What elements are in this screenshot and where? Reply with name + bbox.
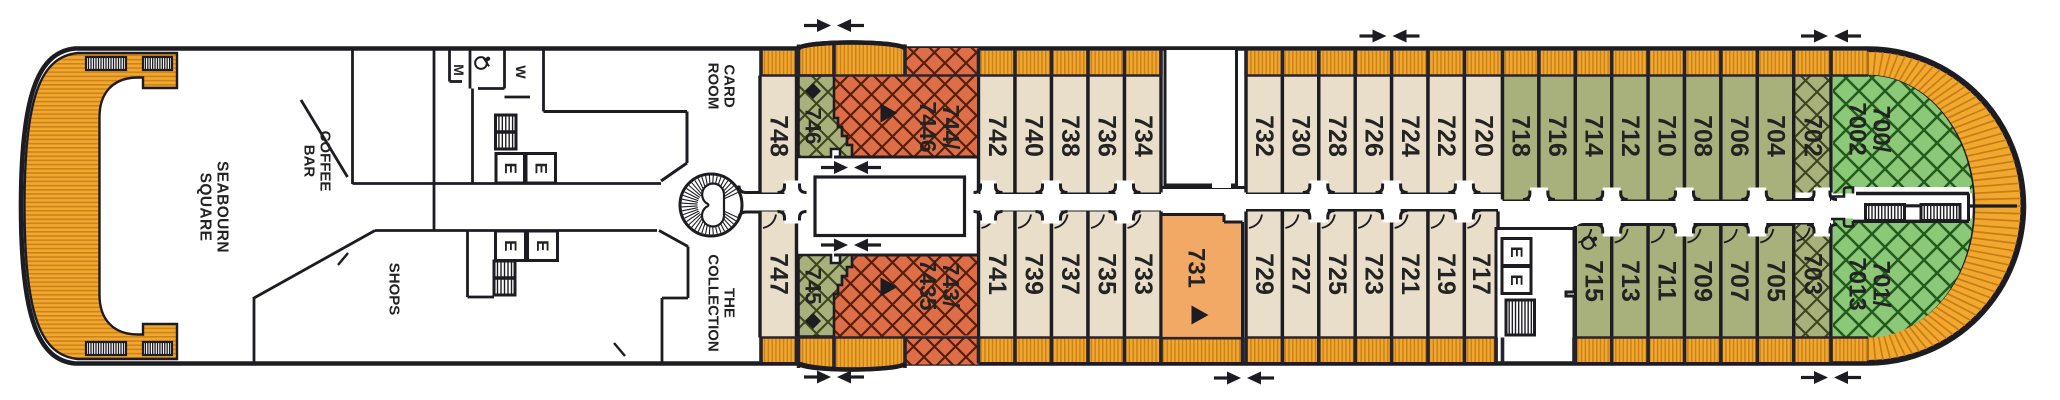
svg-text:747: 747 (764, 253, 792, 295)
svg-text:734: 734 (1129, 115, 1157, 157)
svg-text:724: 724 (1396, 115, 1424, 157)
svg-text:722: 722 (1432, 115, 1460, 157)
svg-text:726: 726 (1359, 115, 1387, 157)
svg-text:COFFEE: COFFEE (317, 131, 334, 192)
svg-text:BAR: BAR (301, 145, 318, 178)
svg-text:7446: 7446 (915, 101, 941, 152)
svg-text:746: 746 (801, 108, 826, 145)
svg-text:740: 740 (1019, 115, 1047, 157)
svg-text:700/: 700/ (1868, 106, 1895, 153)
svg-text:748: 748 (764, 115, 792, 157)
svg-text:730: 730 (1287, 115, 1315, 157)
svg-text:SHOPS: SHOPS (386, 263, 403, 316)
svg-text:E: E (501, 240, 520, 251)
svg-text:COLLECTION: COLLECTION (705, 254, 722, 352)
svg-text:727: 727 (1287, 253, 1315, 295)
svg-text:W: W (513, 65, 529, 79)
svg-text:710: 710 (1652, 115, 1680, 157)
svg-text:E: E (1507, 274, 1526, 285)
svg-text:711: 711 (1652, 261, 1680, 301)
svg-text:725: 725 (1323, 253, 1351, 295)
svg-text:712: 712 (1616, 115, 1644, 157)
svg-text:736: 736 (1092, 115, 1120, 157)
svg-text:732: 732 (1250, 115, 1278, 157)
svg-text:705: 705 (1762, 260, 1790, 302)
svg-text:7013: 7013 (1844, 257, 1871, 310)
svg-text:733: 733 (1129, 253, 1157, 295)
svg-text:739: 739 (1019, 253, 1047, 295)
svg-text:703: 703 (1798, 253, 1826, 295)
svg-text:SEABOURN: SEABOURN (214, 161, 231, 253)
svg-text:E: E (1507, 246, 1526, 257)
svg-text:731: 731 (1183, 248, 1210, 288)
svg-text:728: 728 (1323, 115, 1351, 157)
svg-text:707: 707 (1725, 260, 1753, 302)
svg-text:M: M (451, 64, 467, 76)
svg-text:701/: 701/ (1868, 261, 1895, 308)
svg-text:706: 706 (1725, 115, 1753, 157)
svg-text:738: 738 (1056, 115, 1084, 157)
svg-text:729: 729 (1250, 253, 1278, 295)
svg-text:735: 735 (1092, 253, 1120, 295)
svg-text:714: 714 (1580, 115, 1608, 157)
svg-text:709: 709 (1689, 260, 1717, 302)
svg-text:721: 721 (1396, 253, 1424, 295)
svg-text:717: 717 (1467, 253, 1495, 295)
svg-text:723: 723 (1359, 253, 1387, 295)
svg-text:E: E (501, 163, 520, 174)
svg-text:715: 715 (1580, 260, 1608, 302)
svg-text:720: 720 (1469, 115, 1497, 157)
svg-text:737: 737 (1056, 253, 1084, 295)
svg-text:7002: 7002 (1844, 102, 1871, 155)
svg-text:708: 708 (1689, 115, 1717, 157)
svg-text:741: 741 (983, 253, 1011, 295)
svg-text:E: E (531, 163, 550, 174)
svg-text:ROOM: ROOM (705, 63, 722, 110)
svg-text:7435: 7435 (915, 259, 941, 310)
svg-text:719: 719 (1432, 253, 1460, 295)
svg-text:745: 745 (801, 268, 826, 305)
svg-text:713: 713 (1616, 260, 1644, 302)
svg-text:SQUARE: SQUARE (197, 173, 214, 242)
svg-text:702: 702 (1798, 115, 1826, 157)
svg-text:716: 716 (1543, 115, 1571, 157)
svg-text:704: 704 (1762, 115, 1790, 157)
svg-text:E: E (533, 240, 552, 251)
svg-text:CARD: CARD (721, 64, 738, 107)
svg-text:718: 718 (1507, 115, 1535, 157)
svg-text:742: 742 (983, 115, 1011, 157)
svg-text:THE: THE (721, 288, 738, 318)
